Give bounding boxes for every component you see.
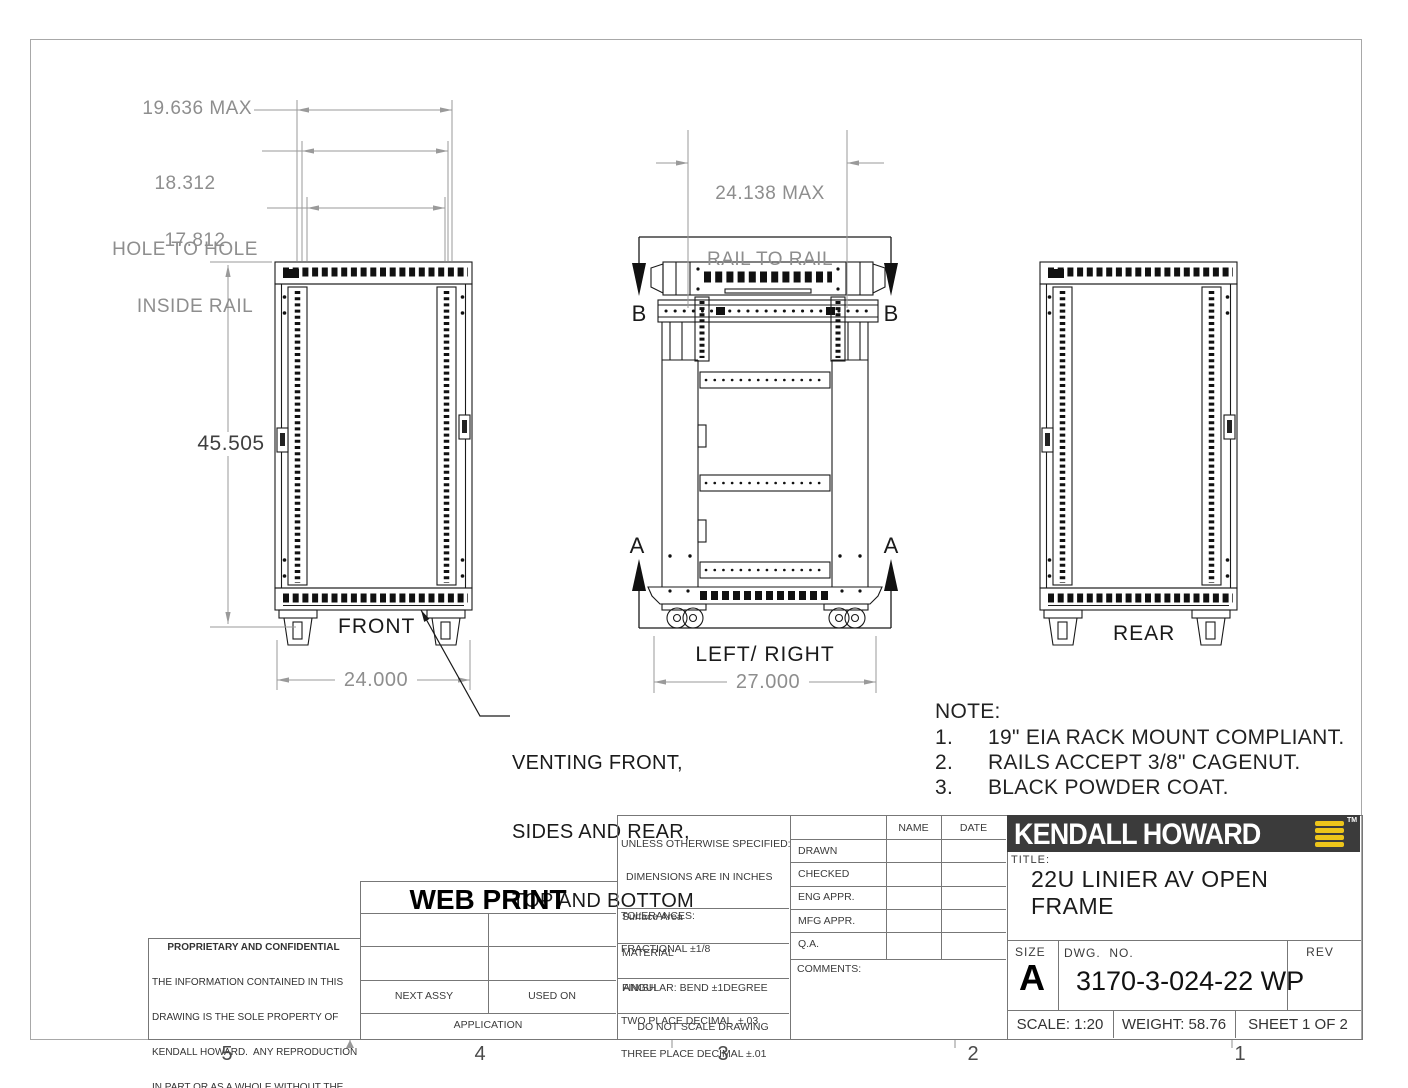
shelf-bar <box>700 372 830 578</box>
title-label: TITLE: <box>1011 854 1050 866</box>
section-a-label-right: A <box>880 533 902 559</box>
note-item-number: 1. <box>935 726 953 750</box>
proprietary-heading: PROPRIETARY AND CONFIDENTIAL <box>150 942 357 954</box>
dim-inside-rail-value: 17.812 <box>120 230 270 252</box>
section-b-label-left: B <box>628 301 650 327</box>
rear-view-label: REAR <box>1113 622 1175 646</box>
notes-heading: NOTE: <box>935 700 1001 724</box>
caster <box>662 604 868 628</box>
front-view-label: FRONT <box>338 615 415 639</box>
dim-inside-rail: 17.812 INSIDE RAIL <box>120 186 270 362</box>
size-value: A <box>1010 957 1054 999</box>
name-column-header: NAME <box>886 822 941 834</box>
logo-bars-icon <box>1315 821 1344 826</box>
note-item-text: BLACK POWDER COAT. <box>988 776 1229 800</box>
rev-label: REV <box>1287 945 1353 959</box>
finish-label: FINISH <box>622 982 656 994</box>
venting-leader-line <box>421 610 510 716</box>
zone-number: 1 <box>1210 1043 1270 1066</box>
dim-height: 45.505 <box>189 432 273 456</box>
approval-row-label: Q.A. <box>798 938 819 950</box>
rear-view <box>1040 262 1237 645</box>
comments-label: COMMENTS: <box>797 963 861 975</box>
dim-inside-rail-label: INSIDE RAIL <box>120 296 270 318</box>
note-item-number: 2. <box>935 751 953 775</box>
zone-number: 5 <box>197 1043 257 1066</box>
kendall-howard-logo: KENDALL HOWARD TM <box>1007 815 1360 852</box>
material-label: MATERIAL <box>622 947 674 959</box>
approval-row-label: MFG APPR. <box>798 915 855 927</box>
venting-note-line: VENTING FRONT, <box>512 752 694 775</box>
section-b-label-right: B <box>880 301 902 327</box>
dwg-no-value: 3170-3-024-22 WP <box>1076 966 1304 997</box>
note-item-number: 3. <box>935 776 953 800</box>
dim-width-max: 19.636 MAX <box>110 98 252 120</box>
used-on-header: USED ON <box>488 990 616 1002</box>
dim-rail-to-rail: 24.138 MAX RAIL TO RAIL <box>690 139 850 315</box>
dim-front-width: 24.000 <box>335 669 417 692</box>
application-header: APPLICATION <box>360 1019 616 1031</box>
note-item-text: 19" EIA RACK MOUNT COMPLIANT. <box>988 726 1345 750</box>
dim-side-depth: 27.000 <box>727 671 809 694</box>
do-not-scale-label: DO NOT SCALE DRAWING <box>617 1021 789 1033</box>
scale-value: SCALE: 1:20 <box>1007 1016 1113 1033</box>
date-column-header: DATE <box>941 822 1006 834</box>
approval-row-label: DRAWN <box>798 845 837 857</box>
trademark-symbol: TM <box>1347 817 1357 824</box>
zone-number: 3 <box>693 1043 753 1066</box>
logo-bars-icon <box>1315 842 1344 847</box>
drawing-title: 22U LINIER AV OPEN FRAME <box>1031 866 1268 920</box>
zone-number: 2 <box>943 1043 1003 1066</box>
sheet-value: SHEET 1 OF 2 <box>1235 1016 1361 1033</box>
approval-row-label: ENG APPR. <box>798 891 855 903</box>
logo-bars-icon <box>1315 835 1344 840</box>
note-item-text: RAILS ACCEPT 3/8" CAGENUT. <box>988 751 1300 775</box>
web-print-stamp: WEB PRINT <box>360 884 616 916</box>
logo-bars-icon <box>1315 828 1344 833</box>
dwg-no-label: DWG. NO. <box>1064 946 1134 960</box>
section-a-label-left: A <box>626 533 648 559</box>
approval-row-label: CHECKED <box>798 868 849 880</box>
side-view <box>648 262 885 628</box>
surface-area-label: Surface Area <box>622 911 683 923</box>
zone-number: 4 <box>450 1043 510 1066</box>
proprietary-text: THE INFORMATION CONTAINED IN THIS DRAWIN… <box>152 954 373 1088</box>
next-assy-header: NEXT ASSY <box>360 990 488 1002</box>
weight-value: WEIGHT: 58.76 <box>1113 1016 1235 1033</box>
drawing-sheet: 19.636 MAX 18.312 HOLE TO HOLE 17.812 IN… <box>0 0 1408 1088</box>
side-view-label: LEFT/ RIGHT <box>685 643 845 667</box>
dim-rail-to-rail-label: RAIL TO RAIL <box>690 249 850 271</box>
dim-rail-to-rail-value: 24.138 MAX <box>690 183 850 205</box>
front-view <box>275 262 472 645</box>
logo-wordmark: KENDALL HOWARD <box>1014 818 1260 852</box>
